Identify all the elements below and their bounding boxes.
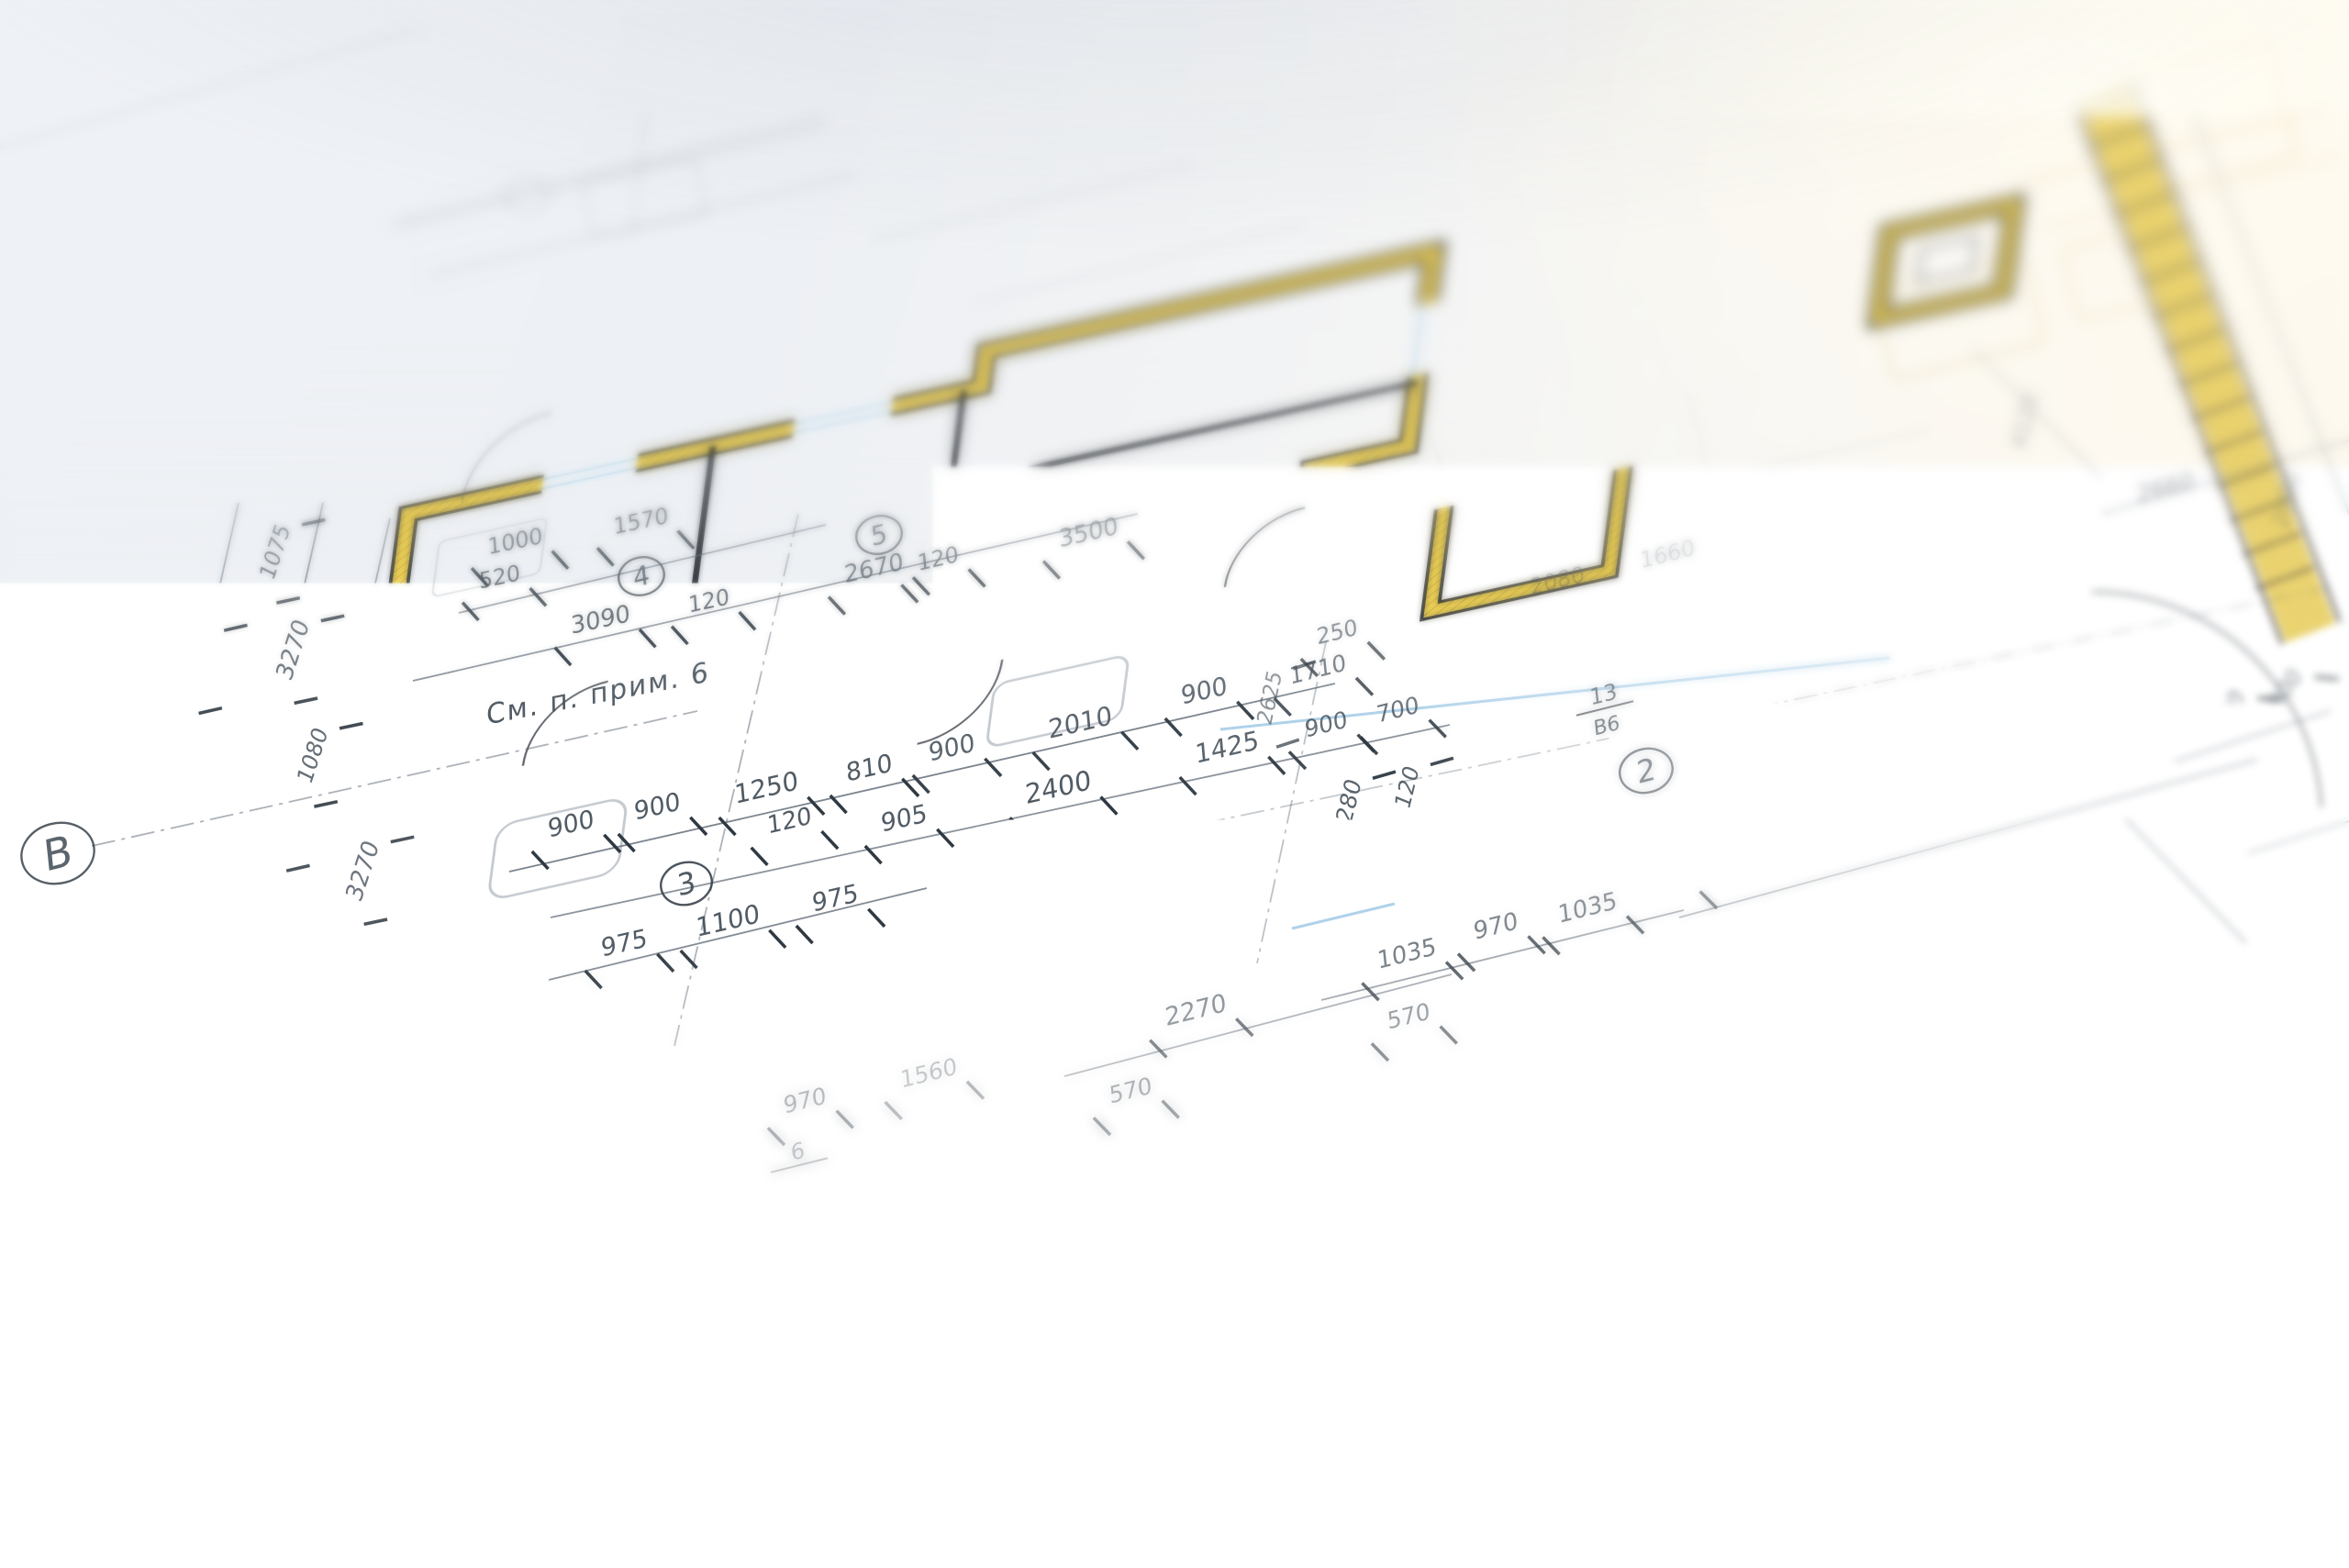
dimension-label: 1425 [1194, 725, 1260, 770]
dimension-label: 1075 [255, 519, 295, 584]
dimension-tick [321, 616, 344, 620]
dimension-tick [902, 779, 918, 796]
axis-marker-label: 4 [631, 559, 651, 594]
dimension-tick [2207, 873, 2231, 875]
dimension-tick [1010, 817, 1027, 835]
dimension-tick [1441, 1027, 1457, 1044]
dimension-tick [262, 949, 284, 954]
dimension-tick [1353, 853, 1375, 860]
dimension-label: 2625 [1253, 668, 1287, 728]
fraction-text: 6 [790, 1137, 807, 1166]
dimension-label: 1560 [642, 1116, 702, 1156]
dimension-tick [1431, 758, 1453, 764]
dimension-label: 900 [633, 787, 682, 827]
dimension-tick [276, 598, 299, 603]
dimension-label: 715 [2155, 860, 2199, 912]
axis-marker-label: 3 [2243, 1389, 2276, 1447]
dimension-tick [1875, 842, 1891, 859]
dimension-label: 1035 [1376, 933, 1438, 975]
dimension-label: 1000 [2288, 765, 2340, 828]
dimension-label: 970 [1473, 907, 1520, 946]
dimension-label: 2660 [2136, 467, 2196, 507]
dimension-tick [199, 708, 222, 714]
dimension-label: 3270 [272, 615, 316, 684]
dimension-label: 3270 [341, 836, 385, 906]
dimension-tick [530, 588, 546, 606]
dimension-tick [459, 1118, 482, 1123]
dimension-tick [1960, 819, 1976, 836]
dimension-tick [1414, 825, 1437, 831]
axis-marker: 2 [1615, 743, 1677, 798]
dimension-label: 1280 [1328, 774, 1366, 841]
dimension-tick [629, 1165, 645, 1183]
blueprint-photo: 1565048303270107510804400327010755201000… [0, 0, 2349, 1568]
axis-marker: 4 [615, 552, 668, 600]
dimension-tick [901, 584, 918, 602]
axis-marker: 6 [1052, 565, 1106, 613]
dimension-label: 2080 [1529, 562, 1586, 601]
dimension-tick [2300, 846, 2324, 848]
axis-marker: Б [12, 1129, 97, 1205]
exterior-wall [282, 251, 1434, 1081]
dimension-label: 1000 [2255, 663, 2307, 727]
dimension-label: 810 [845, 749, 894, 788]
dimension-label: 1660 [1639, 535, 1696, 574]
dimension-tick [710, 1145, 727, 1162]
dimension-tick [1094, 1118, 1110, 1135]
dimension-tick [555, 648, 571, 665]
staircase [2075, 81, 2349, 807]
dimension-label: 570 [1108, 1072, 1152, 1109]
dimension-tick [2315, 677, 2339, 679]
dimension-tick [640, 629, 655, 647]
dimension-label: 4400 [238, 866, 281, 936]
axis-marker-label: 2 [1635, 751, 1658, 791]
dimension-tick [1276, 740, 1299, 747]
dimension-tick [1627, 917, 1643, 934]
dimension-label: 120 [766, 802, 813, 840]
axis-marker-label: 6 [1069, 572, 1088, 606]
dimension-tick [2182, 839, 2206, 840]
dimension-tick [1446, 962, 1463, 980]
dimension-label: 2010 [1047, 700, 1113, 745]
blurred-top-content [0, 28, 1947, 592]
dimension-label: 1000 [487, 523, 544, 561]
dimension-tick [868, 909, 885, 927]
dimension-tick [552, 551, 568, 569]
dimension-tick [751, 848, 768, 865]
dimension-label: 975 [811, 879, 860, 918]
dimension-tick [690, 817, 707, 835]
dimension-tick [1368, 642, 1385, 660]
dimension-label: 7560 [2160, 1073, 2222, 1130]
axis-marker-label: 5 [869, 517, 888, 552]
dimension-tick [1043, 562, 1060, 579]
dimension-label: 3500 [1058, 513, 1119, 554]
dimension-label: 900 [1303, 706, 1348, 743]
axis-marker-label: 1 [1001, 697, 1019, 731]
dimension-tick [1373, 772, 1396, 778]
axis-marker-label: Б [39, 1139, 72, 1195]
dimension-label: 1700 [1887, 789, 1952, 834]
piers [1431, 204, 2015, 610]
dimension-tick [1163, 1101, 1179, 1118]
dimension-tick [837, 1111, 853, 1129]
dimension-label: 1075 [438, 1040, 478, 1104]
dimension-tick [1999, 809, 2016, 826]
dimension-label: 520 [478, 560, 521, 595]
dimension-label: 900 [2207, 684, 2250, 737]
dimension-tick [830, 795, 847, 813]
dimension-tick [768, 1128, 785, 1145]
dimension-label: 870 [2131, 825, 2174, 877]
dimension-label: 970 [782, 1082, 827, 1119]
axis-marker-label: 9 [998, 465, 1017, 499]
dimension-label: 2660 [1713, 839, 1777, 884]
dimension-label: 2270 [1163, 989, 1228, 1033]
dimension-label: 1570 [613, 503, 670, 540]
dimension-tick [286, 865, 309, 871]
dimension-label: 4830 [175, 626, 218, 695]
dimension-label: 905 [880, 799, 929, 839]
dimension-tick [2219, 754, 2243, 756]
dimension-tick [295, 698, 317, 703]
dimension-label: 900 [928, 728, 976, 768]
dimension-tick [796, 926, 813, 943]
axis-marker: 9 [982, 459, 1033, 505]
dimension-label: 4450 [1569, 1351, 1627, 1392]
axis-marker: 3 [2214, 1377, 2304, 1457]
dimension-label: 250 [1315, 614, 1358, 650]
floorplan-walls [282, 85, 2031, 1082]
dimension-tick [740, 612, 755, 629]
dimension-tick [1786, 869, 1802, 885]
dimension-label: 1250 [733, 765, 799, 810]
dimension-label: 900 [1180, 672, 1229, 711]
dimension-label: 900 [547, 805, 596, 844]
dimension-label: 700 [1375, 691, 1419, 728]
dimension-tick [391, 837, 414, 841]
dimension-tick [657, 954, 674, 972]
dimension-tick [2085, 786, 2101, 803]
dimension-tick [678, 531, 694, 549]
dimension-tick [484, 1040, 507, 1044]
labels-layer: 1565048303270107510804400327010755201000… [12, 389, 2349, 1515]
fraction-label: 29В11 [1789, 698, 1860, 767]
fraction-label: 6 [764, 1132, 828, 1173]
dimension-label: 4120 [2006, 389, 2043, 453]
dimension-tick [364, 919, 387, 924]
dimension-label: 15650 [112, 599, 158, 684]
dimension-label: 4050 [945, 1476, 1002, 1516]
dimension-tick [829, 597, 845, 615]
dimension-tick [302, 519, 325, 524]
dimension-label: 3090 [570, 600, 631, 640]
blueprint-drawing: 1565048303270107510804400327010755201000… [0, 0, 2349, 1568]
dimension-tick [2167, 929, 2191, 931]
dimension-tick [1356, 678, 1373, 695]
dimension-tick [1289, 751, 1306, 769]
dimension-tick [1268, 757, 1285, 774]
axis-marker-label: В [41, 825, 74, 882]
dimension-tick [913, 577, 930, 595]
dimension-tick [1700, 892, 1717, 908]
dimension-label: 2660 [2012, 756, 2076, 801]
fraction-text: В11 [1806, 732, 1847, 765]
dimension-tick [224, 625, 247, 630]
axis-marker-label: 3 [675, 864, 697, 904]
dimension-tick [1372, 1043, 1388, 1061]
dimension-tick [1150, 1040, 1166, 1058]
dimension-label: 120 [917, 541, 960, 576]
dimension-tick [1128, 541, 1144, 559]
dimension-tick [597, 548, 613, 565]
dimension-label: 570 [1386, 997, 1431, 1035]
dimension-tick [2267, 744, 2291, 746]
axis-marker: В [15, 815, 100, 891]
dimension-tick [1361, 737, 1377, 754]
dimension-label: 1560 [899, 1052, 959, 1093]
dimension-label: 1035 [1557, 887, 1619, 929]
dimension-tick [969, 569, 985, 586]
dimension-tick [821, 831, 838, 849]
dimension-tick [1101, 797, 1118, 815]
dimension-label: 120 [1390, 762, 1424, 812]
